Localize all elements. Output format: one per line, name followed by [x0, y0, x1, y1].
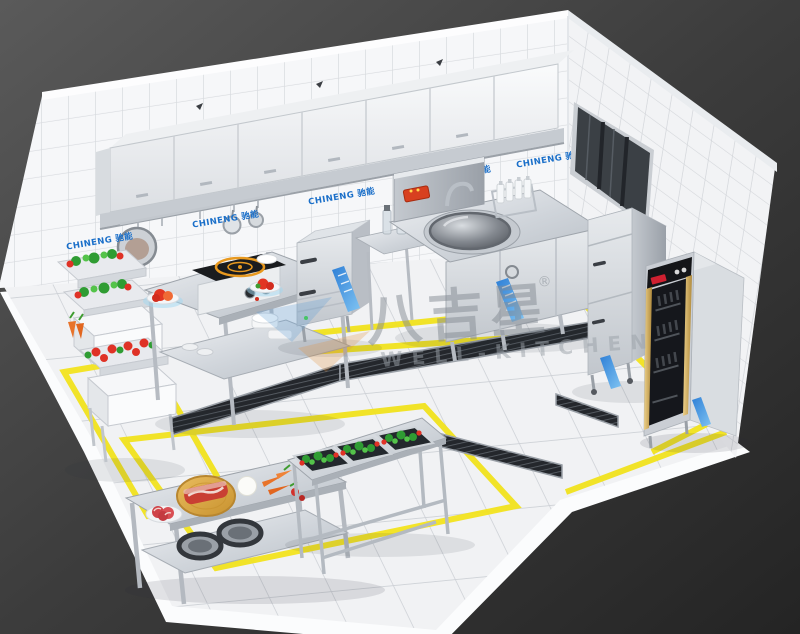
induction-power-button: [255, 297, 259, 301]
dough-ball: [238, 477, 257, 496]
white-bowl: [257, 255, 277, 264]
kitchen-scene-canvas: CHINENG 驰能 CHINENG 驰能 CHINENG 驰能 CHINENG…: [0, 0, 800, 634]
burner-control-dial: [506, 266, 518, 278]
sliced-meat-plate: [146, 506, 182, 523]
wok-pan: [430, 213, 510, 249]
cutting-board: [177, 476, 235, 516]
red-pepper-2: [299, 495, 305, 501]
cabinet-left-endcap: [96, 148, 110, 216]
watermark-registered-mark: ®: [537, 274, 552, 291]
kitchen-3d-render: CHINENG 驰能 CHINENG 驰能 CHINENG 驰能 CHINENG…: [0, 0, 800, 634]
